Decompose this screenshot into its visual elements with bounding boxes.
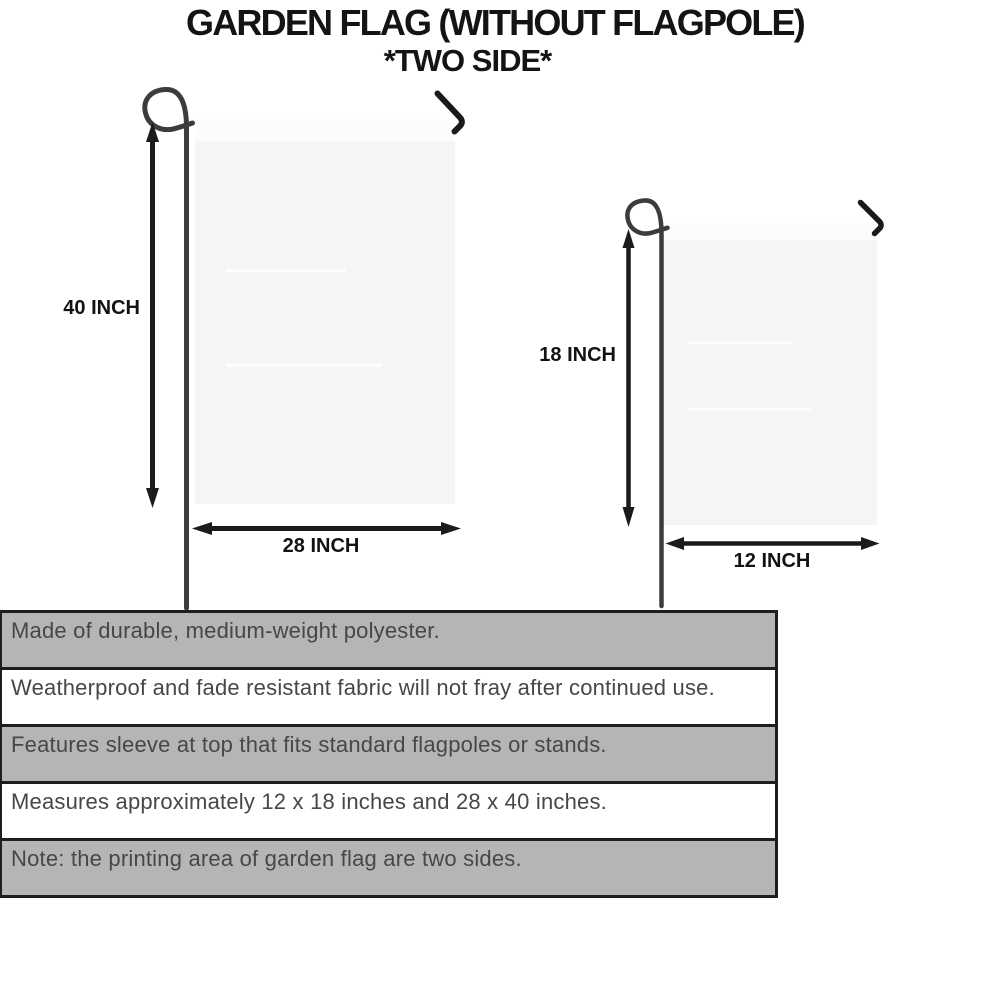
feature-row-note: Note: the printing area of garden flag a… — [2, 838, 775, 895]
small-width-arrow-icon — [666, 537, 880, 550]
page-title-line1: GARDEN FLAG (WITHOUT FLAGPOLE) — [0, 4, 990, 42]
small-height-arrow-icon — [623, 229, 635, 527]
large-flag-height-label: 40 INCH — [0, 297, 140, 320]
small-flag — [662, 223, 877, 525]
small-flag-sleeve — [662, 223, 877, 240]
page-title: GARDEN FLAG (WITHOUT FLAGPOLE) *TWO SIDE… — [0, 4, 990, 78]
feature-row-weatherproof: Weatherproof and fade resistant fabric w… — [2, 667, 775, 724]
small-flag-width-label: 12 INCH — [692, 550, 852, 573]
small-flag-height-label: 18 INCH — [476, 344, 616, 367]
large-height-arrow-icon — [146, 122, 159, 508]
garden-flag-infographic: GARDEN FLAG (WITHOUT FLAGPOLE) *TWO SIDE… — [0, 0, 1000, 1000]
feature-row-material: Made of durable, medium-weight polyester… — [2, 613, 775, 667]
feature-row-sleeve: Features sleeve at top that fits standar… — [2, 724, 775, 781]
page-title-line2: *TWO SIDE* — [0, 44, 935, 78]
large-flagpole-icon — [145, 89, 193, 608]
feature-row-measures: Measures approximately 12 x 18 inches an… — [2, 781, 775, 838]
large-flag — [195, 119, 455, 504]
large-width-arrow-icon — [192, 522, 461, 535]
large-flag-sleeve — [195, 119, 455, 141]
large-flag-width-label: 28 INCH — [241, 535, 401, 558]
feature-table: Made of durable, medium-weight polyester… — [0, 610, 778, 898]
